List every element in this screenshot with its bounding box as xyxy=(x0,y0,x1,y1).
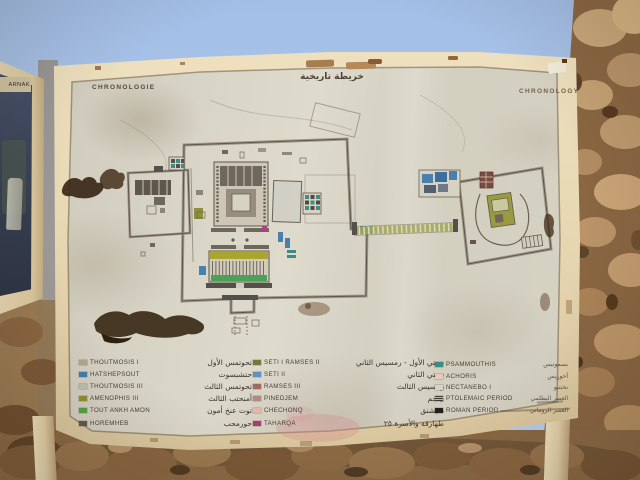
legend-swatch xyxy=(79,360,87,365)
legend-swatch xyxy=(79,396,87,401)
legend-group-ramesside: SETI I RAMSES IIسيتي الأول - رمسيس الثان… xyxy=(253,356,444,429)
legend-label-en: AMENOPHIS III xyxy=(90,395,205,402)
legend-row: RAMSES IIIرمسيس الثالث xyxy=(253,380,444,392)
legend-swatch xyxy=(435,408,443,413)
title-arabic: خريطة تاريخية xyxy=(284,72,380,82)
mut-temple xyxy=(487,192,515,227)
small-magenta-building xyxy=(262,226,267,231)
legend-group-new-kingdom: THOUTMOSIS Iتحوتمس الأولHATSHEPSOUTحتشبس… xyxy=(79,356,252,429)
obelisk-court xyxy=(211,228,269,249)
dromos xyxy=(232,316,259,335)
faint-structure-outline xyxy=(310,103,360,137)
legend-label-en: SETI II xyxy=(264,371,404,378)
legend-row: HATSHEPSOUTحتشبسوت xyxy=(79,368,252,380)
legend-swatch xyxy=(253,384,261,389)
legend-row: TOUT ANKH AMONتوت عنخ أمون xyxy=(79,405,252,417)
sphinx-avenue xyxy=(352,219,458,236)
hypostyle-hall xyxy=(209,251,269,282)
legend-swatch xyxy=(435,362,443,367)
legend-swatch xyxy=(253,360,261,365)
legend-swatch xyxy=(253,396,261,401)
legend-row: PTOLEMAIC PERIODالعصر البطلمي xyxy=(435,393,568,404)
amun-temple xyxy=(214,162,268,226)
legend-row: SETI IIسيتي الثاني xyxy=(253,368,444,380)
legend-swatch xyxy=(79,372,87,377)
legend-label-ar: أمنحتب الثالث xyxy=(208,394,252,403)
legend-label-en: RAMSES III xyxy=(264,383,394,390)
legend-swatch xyxy=(79,384,87,389)
legend-label-en: NECTANEBO I xyxy=(446,384,551,391)
legend-label-en: PSAMMOUTHIS xyxy=(446,361,540,368)
legend-row: HOREMHEBحورمحب xyxy=(79,417,252,429)
legend-label-ar: نختنبو xyxy=(554,384,568,391)
legend-label-ar: طهارقة والأسرة ٢٥ xyxy=(384,419,444,428)
legend-group-late-period: PSAMMOUTHISبسموتيسACHORISأخوريسNECTANEBO… xyxy=(435,359,568,416)
legend-label-en: CHECHONQ xyxy=(264,407,417,414)
legend-row: TAHARQAطهارقة والأسرة ٢٥ xyxy=(253,417,444,429)
legend-label-en: THOUTMOSIS III xyxy=(90,383,201,390)
legend-label-en: THOUTMOSIS I xyxy=(90,359,204,366)
amun-precinct xyxy=(182,139,374,335)
legend-row: CHECHONQشيشنق xyxy=(253,405,444,417)
legend-swatch xyxy=(253,372,261,377)
legend-label-ar: حورمحب xyxy=(224,419,252,428)
legend-swatch xyxy=(435,385,443,390)
legend-label-en: PINEDJEM xyxy=(264,395,425,402)
legend-label-ar: بسموتيس xyxy=(543,361,568,368)
legend-row: ACHORISأخوريس xyxy=(435,370,568,381)
side-temple-olive xyxy=(194,208,203,219)
title-chronology: CHRONOLOGY xyxy=(519,88,579,95)
legend-label-en: HATSHEPSOUT xyxy=(90,371,216,378)
legend-swatch xyxy=(435,374,443,379)
checkered-building xyxy=(303,193,321,214)
legend-label-ar: تحوتمس الأول xyxy=(207,358,252,367)
legend-label-ar: حتشبسوت xyxy=(219,370,252,379)
legend-label-ar: توت عنخ أمون xyxy=(207,406,252,415)
title-chronologie: CHRONOLOGIE xyxy=(92,84,155,91)
montu-checkered-building xyxy=(169,157,184,170)
legend-label-en: SETI I RAMSES II xyxy=(264,359,353,366)
legend-row: NECTANEBO Iنختنبو xyxy=(435,382,568,393)
legend-row: AMENOPHIS IIIأمنحتب الثالث xyxy=(79,393,252,405)
red-building xyxy=(480,172,493,188)
photo-of-karnak-chronology-sign: ARNAK xyxy=(0,0,640,480)
legend-swatch xyxy=(79,408,87,413)
legend-label-en: TAHARQA xyxy=(264,420,381,427)
legend-swatch xyxy=(253,421,261,426)
legend-swatch xyxy=(253,408,261,413)
legend-label-ar: أخوريس xyxy=(547,373,568,380)
legend-label-en: TOUT ANKH AMON xyxy=(90,407,204,414)
legend-label-ar: تحوتمس الثالث xyxy=(204,382,252,391)
legend-label-en: ACHORIS xyxy=(446,373,544,380)
legend-row: THOUTMOSIS IIIتحوتمس الثالث xyxy=(79,380,252,392)
legend-row: PSAMMOUTHISبسموتيس xyxy=(435,359,568,370)
blue-building-complex xyxy=(419,170,460,197)
legend-row: SETI I RAMSES IIسيتي الأول - رمسيس الثان… xyxy=(253,356,444,368)
legend-label-en: HOREMHEB xyxy=(90,420,221,427)
mut-precinct xyxy=(419,168,551,264)
montu-precinct xyxy=(128,157,205,262)
legend-label-en: PTOLEMAIC PERIOD xyxy=(446,395,528,402)
legend-row: THOUTMOSIS Iتحوتمس الأول xyxy=(79,356,252,368)
legend-row: PINEDJEMبينجم xyxy=(253,393,444,405)
legend-swatch xyxy=(79,421,87,426)
sacred-lake xyxy=(272,181,301,223)
legend-swatch xyxy=(435,396,443,401)
side-temple-blue xyxy=(199,266,206,275)
legend-label-ar: سيتي الأول - رمسيس الثاني xyxy=(356,358,444,367)
first-pylon xyxy=(222,295,258,300)
